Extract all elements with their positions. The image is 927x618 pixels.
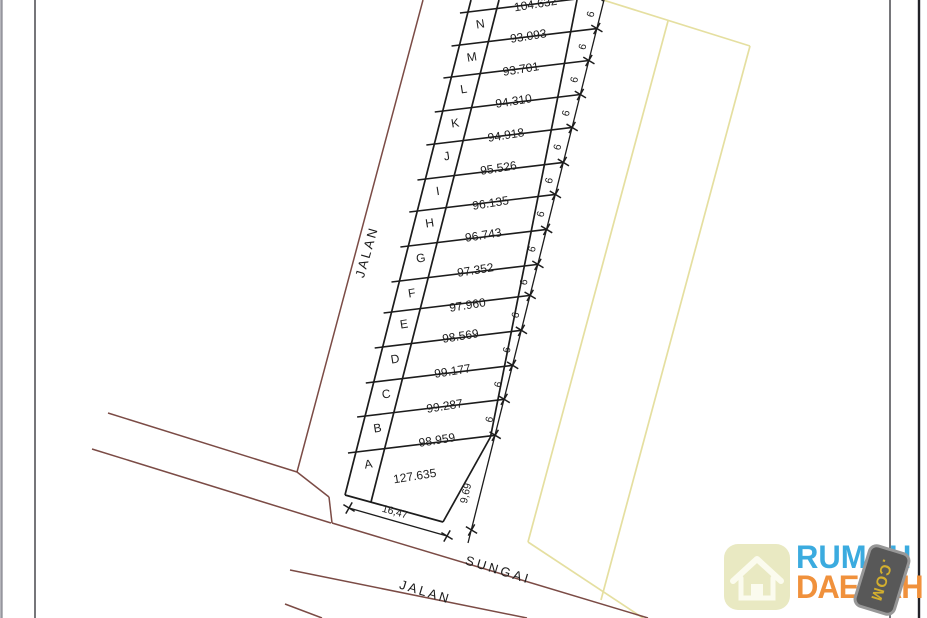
plot-letter: C xyxy=(381,386,392,401)
parcel-boundary-yellow xyxy=(601,46,750,600)
plot-area-value: 93.093 xyxy=(509,26,548,46)
plot-area-value: 98.959 xyxy=(418,430,457,450)
parcel-boundary-yellow xyxy=(528,542,643,618)
plot-letter: I xyxy=(435,184,440,198)
river-label: SUNGAI xyxy=(464,553,533,587)
plot-letter: L xyxy=(459,82,468,97)
road-line xyxy=(297,0,423,472)
road-line xyxy=(92,449,331,523)
dimension-label-right: 9,69 xyxy=(458,482,474,505)
plot-area-value: 127.635 xyxy=(392,466,437,487)
dimension-tick xyxy=(343,505,354,512)
plot-area-value: 93.701 xyxy=(502,59,541,79)
road-label-bottom: JALAN xyxy=(398,577,453,607)
dimension-tick xyxy=(441,533,452,540)
plot-letter: A xyxy=(363,457,373,472)
plot-area-value: 96.135 xyxy=(471,193,510,213)
logo-badge-text: .COM xyxy=(868,557,897,603)
parcel-boundary-yellow xyxy=(603,0,750,46)
plot-width-label: 6 xyxy=(560,109,573,118)
plot-area-value: 99.287 xyxy=(425,396,464,416)
plot-letter: H xyxy=(424,215,435,230)
road-line xyxy=(285,604,322,618)
plot-width-label: 6 xyxy=(585,10,598,19)
plot-letter: D xyxy=(390,351,401,366)
plot-letter: N xyxy=(475,16,486,31)
road-line xyxy=(297,472,329,497)
plot-width-label: 6 xyxy=(501,346,514,355)
plot-area-value: 96.743 xyxy=(464,225,503,245)
plot-width-label: 6 xyxy=(551,143,564,152)
logo-watermark: RUMAH DAERAH .COM xyxy=(720,541,927,617)
plot-letter: B xyxy=(372,421,382,436)
plot-area-value: 94.918 xyxy=(487,125,526,145)
parcel-boundary-yellow xyxy=(528,21,668,542)
plot-width-label: 6 xyxy=(543,176,556,185)
plot-letter: F xyxy=(407,286,416,301)
plot-letter: K xyxy=(450,116,460,131)
plot-area-value: 98.569 xyxy=(441,326,480,346)
scanned-site-plan-page: { "drawing": { "plots": [ {"letter":"", … xyxy=(0,0,927,618)
plot-area-value: 94.310 xyxy=(494,91,533,111)
plot-width-label: 6 xyxy=(568,75,581,84)
plot-area-value: 95.526 xyxy=(479,158,518,178)
house-icon xyxy=(724,544,790,610)
plot-area-value: 99.177 xyxy=(433,361,472,381)
house-icon-glyph xyxy=(724,544,790,610)
plot-strip-edge xyxy=(371,0,499,502)
plot-width-label: 6 xyxy=(518,278,531,287)
plot-area-value: 97.352 xyxy=(456,260,495,280)
site-plan-drawing: 66666666666669,6916,47104.632N93.093M93.… xyxy=(0,0,927,618)
plot-area-value: 97.960 xyxy=(448,295,487,315)
road-line xyxy=(329,497,332,523)
plot-letter: J xyxy=(443,149,451,164)
plot-width-label: 6 xyxy=(492,380,505,389)
plot-letter: G xyxy=(415,250,426,265)
plot-letter: M xyxy=(466,49,478,64)
plot-area-value: 104.632 xyxy=(513,0,558,14)
plot-letter: E xyxy=(399,317,409,332)
plot-width-label: 6 xyxy=(535,210,548,219)
plot-width-label: 6 xyxy=(576,42,589,51)
